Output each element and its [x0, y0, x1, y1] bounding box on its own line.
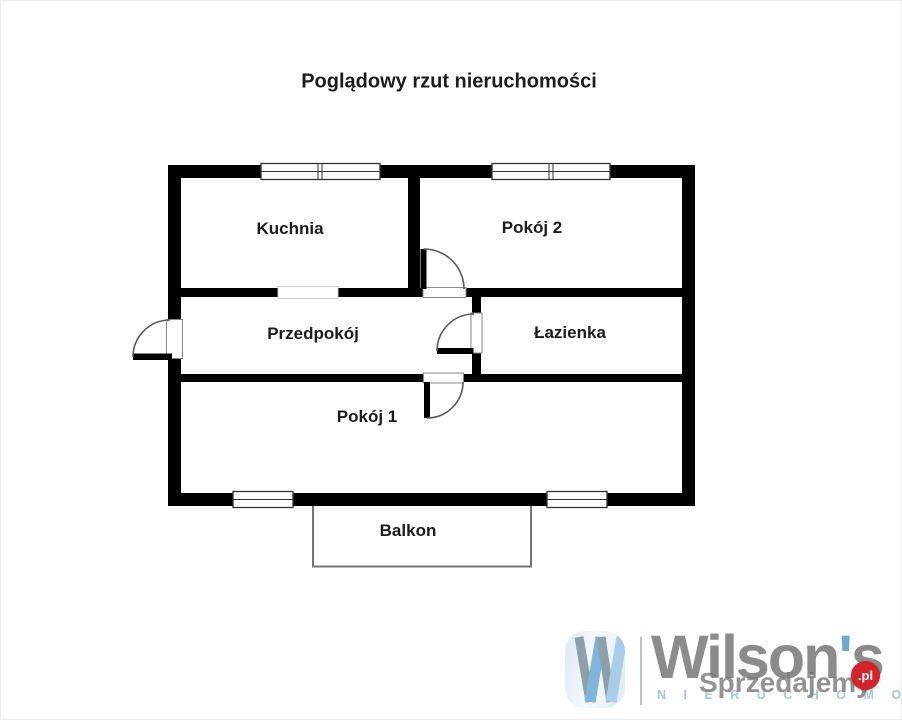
- room-label-pokoj2: Pokój 2: [502, 218, 562, 238]
- entrance-door-frame: [167, 320, 183, 359]
- floor-plan-page: Poglądowy rzut nieruchomości: [0, 0, 902, 720]
- room-label-balkon: Balkon: [380, 521, 437, 541]
- pokoj1-door-arc: [427, 382, 463, 418]
- room-label-kuchnia: Kuchnia: [256, 219, 323, 239]
- entrance-door-leaf: [133, 354, 172, 361]
- exterior-walls: [168, 165, 695, 506]
- pokoj1-door-frame: [424, 373, 464, 383]
- pokoj1-door-leaf: [424, 382, 430, 418]
- room-label-pokoj1: Pokój 1: [337, 407, 397, 427]
- window-pokoj2: [492, 164, 610, 180]
- entrance-door-arc: [133, 320, 170, 357]
- window-pokoj1-left: [233, 492, 293, 508]
- interior-walls: [181, 178, 682, 382]
- logo-divider: [640, 637, 642, 705]
- watermark-pl-badge: .pl: [851, 661, 880, 690]
- interior-wall-kuchnia-pokoj2: [408, 178, 420, 297]
- pokoj2-door-frame: [423, 288, 466, 298]
- passage-kuchnia-przedpokoj: [278, 287, 338, 299]
- window-kuchnia: [261, 164, 380, 180]
- pokoj2-door-leaf: [421, 249, 427, 289]
- window-pokoj1-right: [547, 492, 607, 508]
- room-label-przedpokoj: Przedpokój: [267, 324, 359, 344]
- lazienka-door-leaf: [437, 348, 474, 354]
- exterior-wall-right: [682, 165, 695, 506]
- lazienka-door-frame: [471, 313, 482, 353]
- pokoj2-door-arc: [424, 249, 464, 289]
- lazienka-door-arc: [437, 314, 474, 351]
- wilsons-logo-badge: [565, 631, 625, 708]
- wilsons-monogram-icon: [565, 631, 625, 708]
- exterior-wall-top: [168, 165, 695, 178]
- floor-plan-drawing: [0, 0, 902, 720]
- room-label-lazienka: Łazienka: [534, 323, 606, 343]
- sprzedajemy-watermark: Sprzedajemy: [699, 667, 872, 699]
